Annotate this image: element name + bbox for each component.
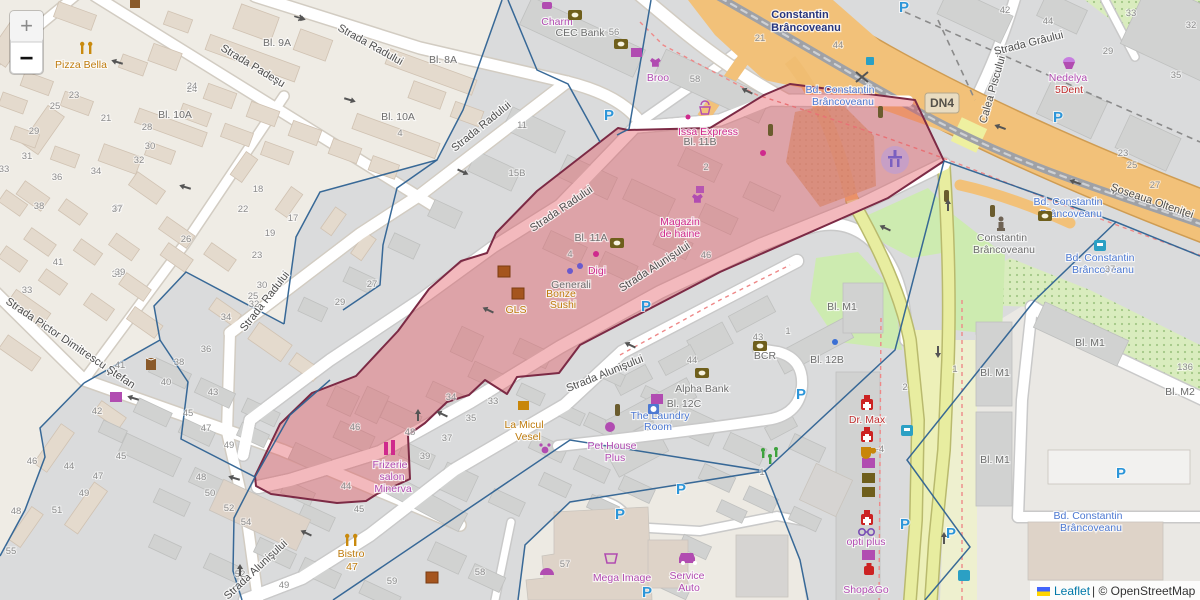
svg-text:17: 17 bbox=[288, 213, 299, 224]
svg-text:-4: -4 bbox=[876, 444, 884, 455]
svg-text:1: 1 bbox=[952, 364, 957, 375]
svg-text:Bl. 8A: Bl. 8A bbox=[429, 54, 457, 66]
svg-text:Auto: Auto bbox=[678, 582, 700, 594]
svg-text:45: 45 bbox=[116, 451, 127, 462]
svg-text:Pizza Bella: Pizza Bella bbox=[55, 59, 107, 71]
svg-text:P: P bbox=[604, 107, 614, 124]
svg-text:2: 2 bbox=[902, 382, 907, 393]
svg-text:58: 58 bbox=[475, 567, 486, 578]
svg-text:Bl. M1: Bl. M1 bbox=[980, 454, 1010, 466]
svg-text:Brâncoveanu: Brâncoveanu bbox=[1060, 522, 1122, 534]
svg-text:39: 39 bbox=[420, 451, 431, 462]
svg-text:de haine: de haine bbox=[660, 228, 700, 240]
svg-text:Bd. Constantin: Bd. Constantin bbox=[1054, 510, 1123, 522]
svg-text:25: 25 bbox=[50, 101, 61, 112]
svg-text:37: 37 bbox=[442, 433, 453, 444]
svg-text:Minerva: Minerva bbox=[374, 483, 412, 495]
svg-text:30: 30 bbox=[145, 141, 156, 152]
svg-text:26: 26 bbox=[181, 234, 192, 245]
svg-text:56: 56 bbox=[609, 27, 620, 38]
svg-text:39: 39 bbox=[115, 267, 126, 278]
svg-text:36: 36 bbox=[201, 344, 212, 355]
svg-text:136: 136 bbox=[1177, 362, 1193, 373]
svg-text:Bl. 12C: Bl. 12C bbox=[667, 398, 702, 410]
svg-text:Sushi: Sushi bbox=[550, 299, 576, 311]
svg-text:25: 25 bbox=[1127, 160, 1138, 171]
svg-text:Digi: Digi bbox=[588, 265, 606, 277]
svg-text:Broo: Broo bbox=[647, 72, 669, 84]
svg-text:11: 11 bbox=[517, 120, 527, 131]
svg-text:BCR: BCR bbox=[754, 350, 777, 362]
svg-text:Bl. 10A: Bl. 10A bbox=[158, 109, 192, 121]
svg-text:33: 33 bbox=[0, 164, 9, 175]
svg-text:49: 49 bbox=[79, 488, 90, 499]
svg-text:45: 45 bbox=[354, 504, 365, 515]
svg-text:58: 58 bbox=[690, 74, 701, 85]
svg-text:52: 52 bbox=[224, 503, 235, 514]
svg-text:57: 57 bbox=[560, 559, 571, 570]
svg-text:32: 32 bbox=[134, 155, 145, 166]
svg-text:Shop&Go: Shop&Go bbox=[843, 584, 889, 596]
svg-text:Brâncoveanu: Brâncoveanu bbox=[812, 96, 874, 108]
svg-text:P: P bbox=[796, 386, 806, 403]
svg-text:42: 42 bbox=[1000, 5, 1011, 16]
svg-text:46: 46 bbox=[27, 456, 38, 467]
svg-text:Pet House: Pet House bbox=[587, 440, 636, 452]
svg-text:P: P bbox=[615, 506, 625, 523]
svg-text:29: 29 bbox=[1103, 46, 1114, 57]
svg-text:21: 21 bbox=[101, 113, 112, 124]
svg-text:Issa Express: Issa Express bbox=[678, 126, 738, 138]
svg-text:33: 33 bbox=[488, 396, 499, 407]
svg-text:P: P bbox=[1116, 465, 1126, 482]
svg-text:31: 31 bbox=[22, 151, 33, 162]
svg-text:Brâncoveanu: Brâncoveanu bbox=[973, 244, 1035, 256]
svg-text:Plus: Plus bbox=[605, 452, 625, 464]
svg-text:P: P bbox=[676, 481, 686, 498]
svg-text:5Dent: 5Dent bbox=[1055, 84, 1083, 96]
svg-text:Room: Room bbox=[644, 421, 672, 433]
svg-text:salon: salon bbox=[379, 471, 404, 483]
svg-text:34: 34 bbox=[446, 392, 457, 403]
svg-text:47: 47 bbox=[93, 471, 104, 482]
svg-text:Bd. Constantin: Bd. Constantin bbox=[1034, 196, 1103, 208]
svg-text:Bistro: Bistro bbox=[338, 548, 365, 560]
svg-text:32: 32 bbox=[249, 299, 260, 310]
svg-text:23: 23 bbox=[1118, 148, 1129, 159]
svg-text:P: P bbox=[641, 298, 651, 315]
svg-text:54: 54 bbox=[241, 517, 252, 528]
svg-text:35: 35 bbox=[1171, 70, 1182, 81]
svg-text:P: P bbox=[1053, 109, 1063, 126]
svg-text:44: 44 bbox=[687, 355, 698, 366]
svg-text:P: P bbox=[899, 0, 909, 16]
svg-text:41: 41 bbox=[53, 257, 64, 268]
svg-text:30: 30 bbox=[257, 280, 268, 291]
svg-text:50: 50 bbox=[205, 488, 216, 499]
svg-text:44: 44 bbox=[1043, 16, 1054, 27]
svg-text:Bl. 12B: Bl. 12B bbox=[810, 354, 844, 366]
svg-text:15B: 15B bbox=[509, 168, 526, 179]
svg-text:33: 33 bbox=[1126, 8, 1137, 19]
svg-text:18: 18 bbox=[253, 184, 264, 195]
svg-text:P: P bbox=[946, 525, 956, 542]
svg-text:35: 35 bbox=[466, 413, 477, 424]
svg-text:47: 47 bbox=[346, 561, 358, 573]
svg-text:Brâncoveanu: Brâncoveanu bbox=[1072, 264, 1134, 276]
svg-text:Bd. Constantin: Bd. Constantin bbox=[1066, 252, 1135, 264]
svg-text:Bl. M2: Bl. M2 bbox=[1165, 386, 1195, 398]
svg-text:46: 46 bbox=[701, 250, 712, 261]
svg-text:27: 27 bbox=[1150, 180, 1161, 191]
svg-text:| © OpenStreetMap: | © OpenStreetMap bbox=[1092, 584, 1196, 598]
svg-text:Alpha Bank: Alpha Bank bbox=[675, 383, 729, 395]
svg-text:Bl. M1: Bl. M1 bbox=[980, 367, 1010, 379]
svg-text:Leaflet: Leaflet bbox=[1054, 584, 1091, 598]
svg-text:48: 48 bbox=[196, 472, 207, 483]
svg-text:48: 48 bbox=[405, 427, 416, 438]
svg-text:27: 27 bbox=[367, 279, 378, 290]
svg-text:P: P bbox=[900, 516, 910, 533]
svg-text:42: 42 bbox=[92, 406, 103, 417]
svg-text:4: 4 bbox=[567, 249, 572, 260]
svg-text:Bl. M1: Bl. M1 bbox=[827, 301, 857, 313]
svg-text:DN4: DN4 bbox=[930, 96, 954, 110]
svg-text:37: 37 bbox=[1105, 264, 1116, 275]
svg-text:23: 23 bbox=[252, 250, 263, 261]
svg-text:59: 59 bbox=[387, 576, 398, 587]
svg-text:Bl. 11A: Bl. 11A bbox=[574, 232, 607, 244]
svg-text:4: 4 bbox=[397, 128, 402, 139]
svg-text:Constantin: Constantin bbox=[977, 232, 1027, 244]
svg-text:La Micul: La Micul bbox=[504, 419, 543, 431]
svg-text:1: 1 bbox=[785, 326, 790, 337]
svg-text:Bl. 9A: Bl. 9A bbox=[263, 37, 291, 49]
svg-text:Constantin: Constantin bbox=[771, 9, 829, 21]
svg-text:43: 43 bbox=[208, 387, 219, 398]
svg-text:Nedelya: Nedelya bbox=[1049, 72, 1088, 84]
svg-text:47: 47 bbox=[201, 423, 212, 434]
svg-text:38: 38 bbox=[174, 357, 185, 368]
svg-text:34: 34 bbox=[91, 166, 102, 177]
svg-text:Dr. Max: Dr. Max bbox=[849, 414, 886, 426]
svg-text:44: 44 bbox=[341, 481, 352, 492]
svg-text:19: 19 bbox=[265, 228, 276, 239]
svg-text:49: 49 bbox=[224, 440, 235, 451]
svg-text:37: 37 bbox=[112, 204, 123, 215]
svg-text:Bd. Constantin: Bd. Constantin bbox=[806, 84, 875, 96]
svg-text:36: 36 bbox=[52, 172, 63, 183]
svg-text:48: 48 bbox=[11, 506, 22, 517]
svg-text:21: 21 bbox=[755, 33, 766, 44]
svg-text:P: P bbox=[642, 584, 652, 600]
svg-text:2: 2 bbox=[703, 162, 708, 173]
svg-text:Frizerie: Frizerie bbox=[372, 459, 407, 471]
svg-text:Magazin: Magazin bbox=[660, 216, 700, 228]
svg-text:Service: Service bbox=[669, 570, 704, 582]
svg-text:51: 51 bbox=[52, 505, 63, 516]
svg-text:1: 1 bbox=[759, 467, 764, 478]
svg-text:46: 46 bbox=[350, 422, 361, 433]
svg-text:38: 38 bbox=[34, 201, 45, 212]
svg-text:33: 33 bbox=[22, 285, 33, 296]
svg-text:34: 34 bbox=[221, 312, 232, 323]
svg-text:Vesel: Vesel bbox=[515, 431, 541, 443]
svg-text:41: 41 bbox=[115, 360, 126, 371]
svg-text:CEC Bank: CEC Bank bbox=[555, 27, 605, 39]
svg-text:29: 29 bbox=[335, 297, 346, 308]
svg-text:24: 24 bbox=[187, 81, 198, 92]
svg-text:Bl. 10A: Bl. 10A bbox=[381, 111, 415, 123]
svg-text:opti plus: opti plus bbox=[846, 536, 885, 548]
svg-text:Mega Image: Mega Image bbox=[593, 572, 652, 584]
svg-text:40: 40 bbox=[161, 377, 172, 388]
svg-text:22: 22 bbox=[238, 204, 249, 215]
svg-text:+: + bbox=[20, 13, 33, 38]
svg-text:28: 28 bbox=[142, 122, 153, 133]
svg-text:45: 45 bbox=[183, 408, 194, 419]
svg-text:−: − bbox=[19, 45, 33, 72]
svg-text:Brâncoveanu: Brâncoveanu bbox=[771, 22, 841, 34]
svg-text:55: 55 bbox=[6, 546, 17, 557]
svg-text:44: 44 bbox=[64, 461, 75, 472]
svg-text:23: 23 bbox=[69, 90, 80, 101]
svg-text:Bl. M1: Bl. M1 bbox=[1075, 337, 1105, 349]
svg-text:32: 32 bbox=[1186, 20, 1197, 31]
svg-text:GLS: GLS bbox=[505, 304, 526, 316]
svg-text:44: 44 bbox=[833, 40, 844, 51]
svg-text:29: 29 bbox=[29, 126, 40, 137]
svg-text:49: 49 bbox=[279, 580, 290, 591]
